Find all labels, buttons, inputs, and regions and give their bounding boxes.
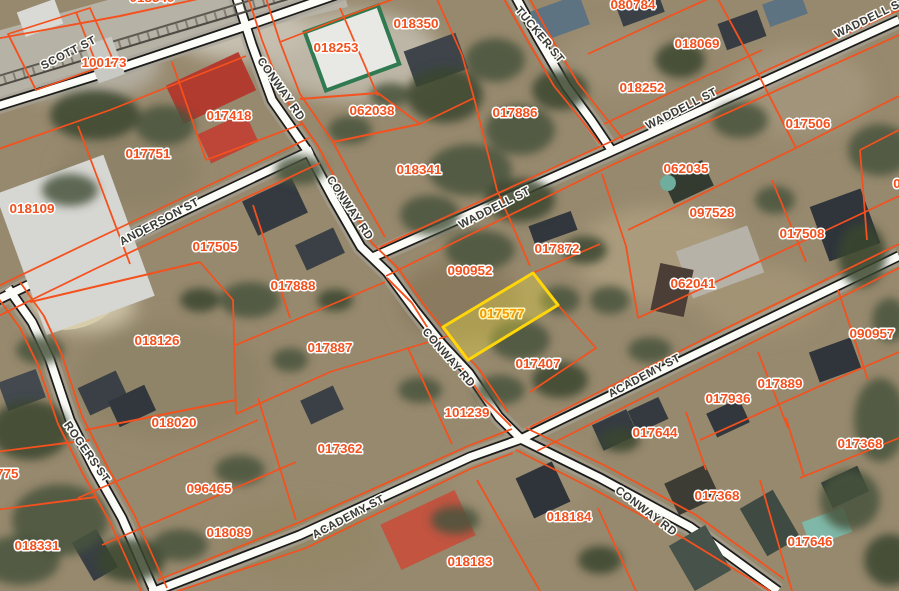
parcel-label-018341: 018341 bbox=[396, 162, 442, 177]
parcel-label-017368: 017368 bbox=[837, 436, 883, 451]
parcel-label-017888: 017888 bbox=[270, 278, 316, 293]
parcel-label-017775: 017775 bbox=[0, 466, 19, 481]
parcel-label-017886: 017886 bbox=[492, 105, 538, 120]
parcel-label-018089: 018089 bbox=[206, 525, 251, 540]
parcel-label-017407: 017407 bbox=[515, 356, 560, 371]
parcel-label-017751: 017751 bbox=[125, 146, 171, 161]
parcel-label-017887: 017887 bbox=[307, 340, 352, 355]
parcel-label-062035: 062035 bbox=[663, 161, 709, 176]
parcel-label-018331: 018331 bbox=[14, 538, 60, 553]
parcel-label-017872: 017872 bbox=[534, 241, 579, 256]
parcel-label-017505: 017505 bbox=[192, 239, 238, 254]
map-canvas[interactable]: SCOTT STCONWAY RDCONWAY RDCONWAY RDCONWA… bbox=[0, 0, 899, 591]
parcel-label-017889: 017889 bbox=[757, 376, 802, 391]
parcel-label-017508: 017508 bbox=[779, 226, 825, 241]
parcel-label-090952: 090952 bbox=[447, 263, 492, 278]
parcel-label-018126: 018126 bbox=[134, 333, 180, 348]
parcel-label-097528: 097528 bbox=[689, 205, 735, 220]
parcel-label-018349: 018349 bbox=[129, 0, 174, 5]
parcel-label-018252: 018252 bbox=[619, 80, 664, 95]
parcel-label-017362: 017362 bbox=[317, 441, 362, 456]
parcel-label-017368: 017368 bbox=[694, 488, 740, 503]
parcel-label-0: 0 bbox=[893, 176, 899, 191]
parcel-label-018183: 018183 bbox=[447, 554, 493, 569]
parcel-label-062041: 062041 bbox=[670, 276, 716, 291]
parcel-label-090957: 090957 bbox=[849, 326, 894, 341]
parcel-label-062038: 062038 bbox=[349, 103, 395, 118]
parcel-label-017644: 017644 bbox=[632, 425, 678, 440]
parcel-label-017646: 017646 bbox=[787, 534, 833, 549]
parcel-label-018350: 018350 bbox=[393, 16, 438, 31]
parcel-label-018020: 018020 bbox=[151, 415, 196, 430]
parcel-label-017418: 017418 bbox=[206, 108, 252, 123]
parcel-label-017506: 017506 bbox=[785, 116, 831, 131]
parcel-label-096465: 096465 bbox=[186, 481, 232, 496]
parcel-label-100173: 100173 bbox=[81, 55, 127, 70]
parcel-label-017936: 017936 bbox=[705, 391, 751, 406]
parcel-label-017577-highlighted: 017577 bbox=[479, 306, 524, 321]
parcel-label-018069: 018069 bbox=[674, 36, 719, 51]
parcel-label-018184: 018184 bbox=[546, 509, 592, 524]
parcel-label-018253: 018253 bbox=[313, 40, 359, 55]
parcel-label-101239: 101239 bbox=[444, 405, 489, 420]
parcel-label-018109: 018109 bbox=[9, 201, 54, 216]
parcel-label-080784: 080784 bbox=[610, 0, 656, 12]
